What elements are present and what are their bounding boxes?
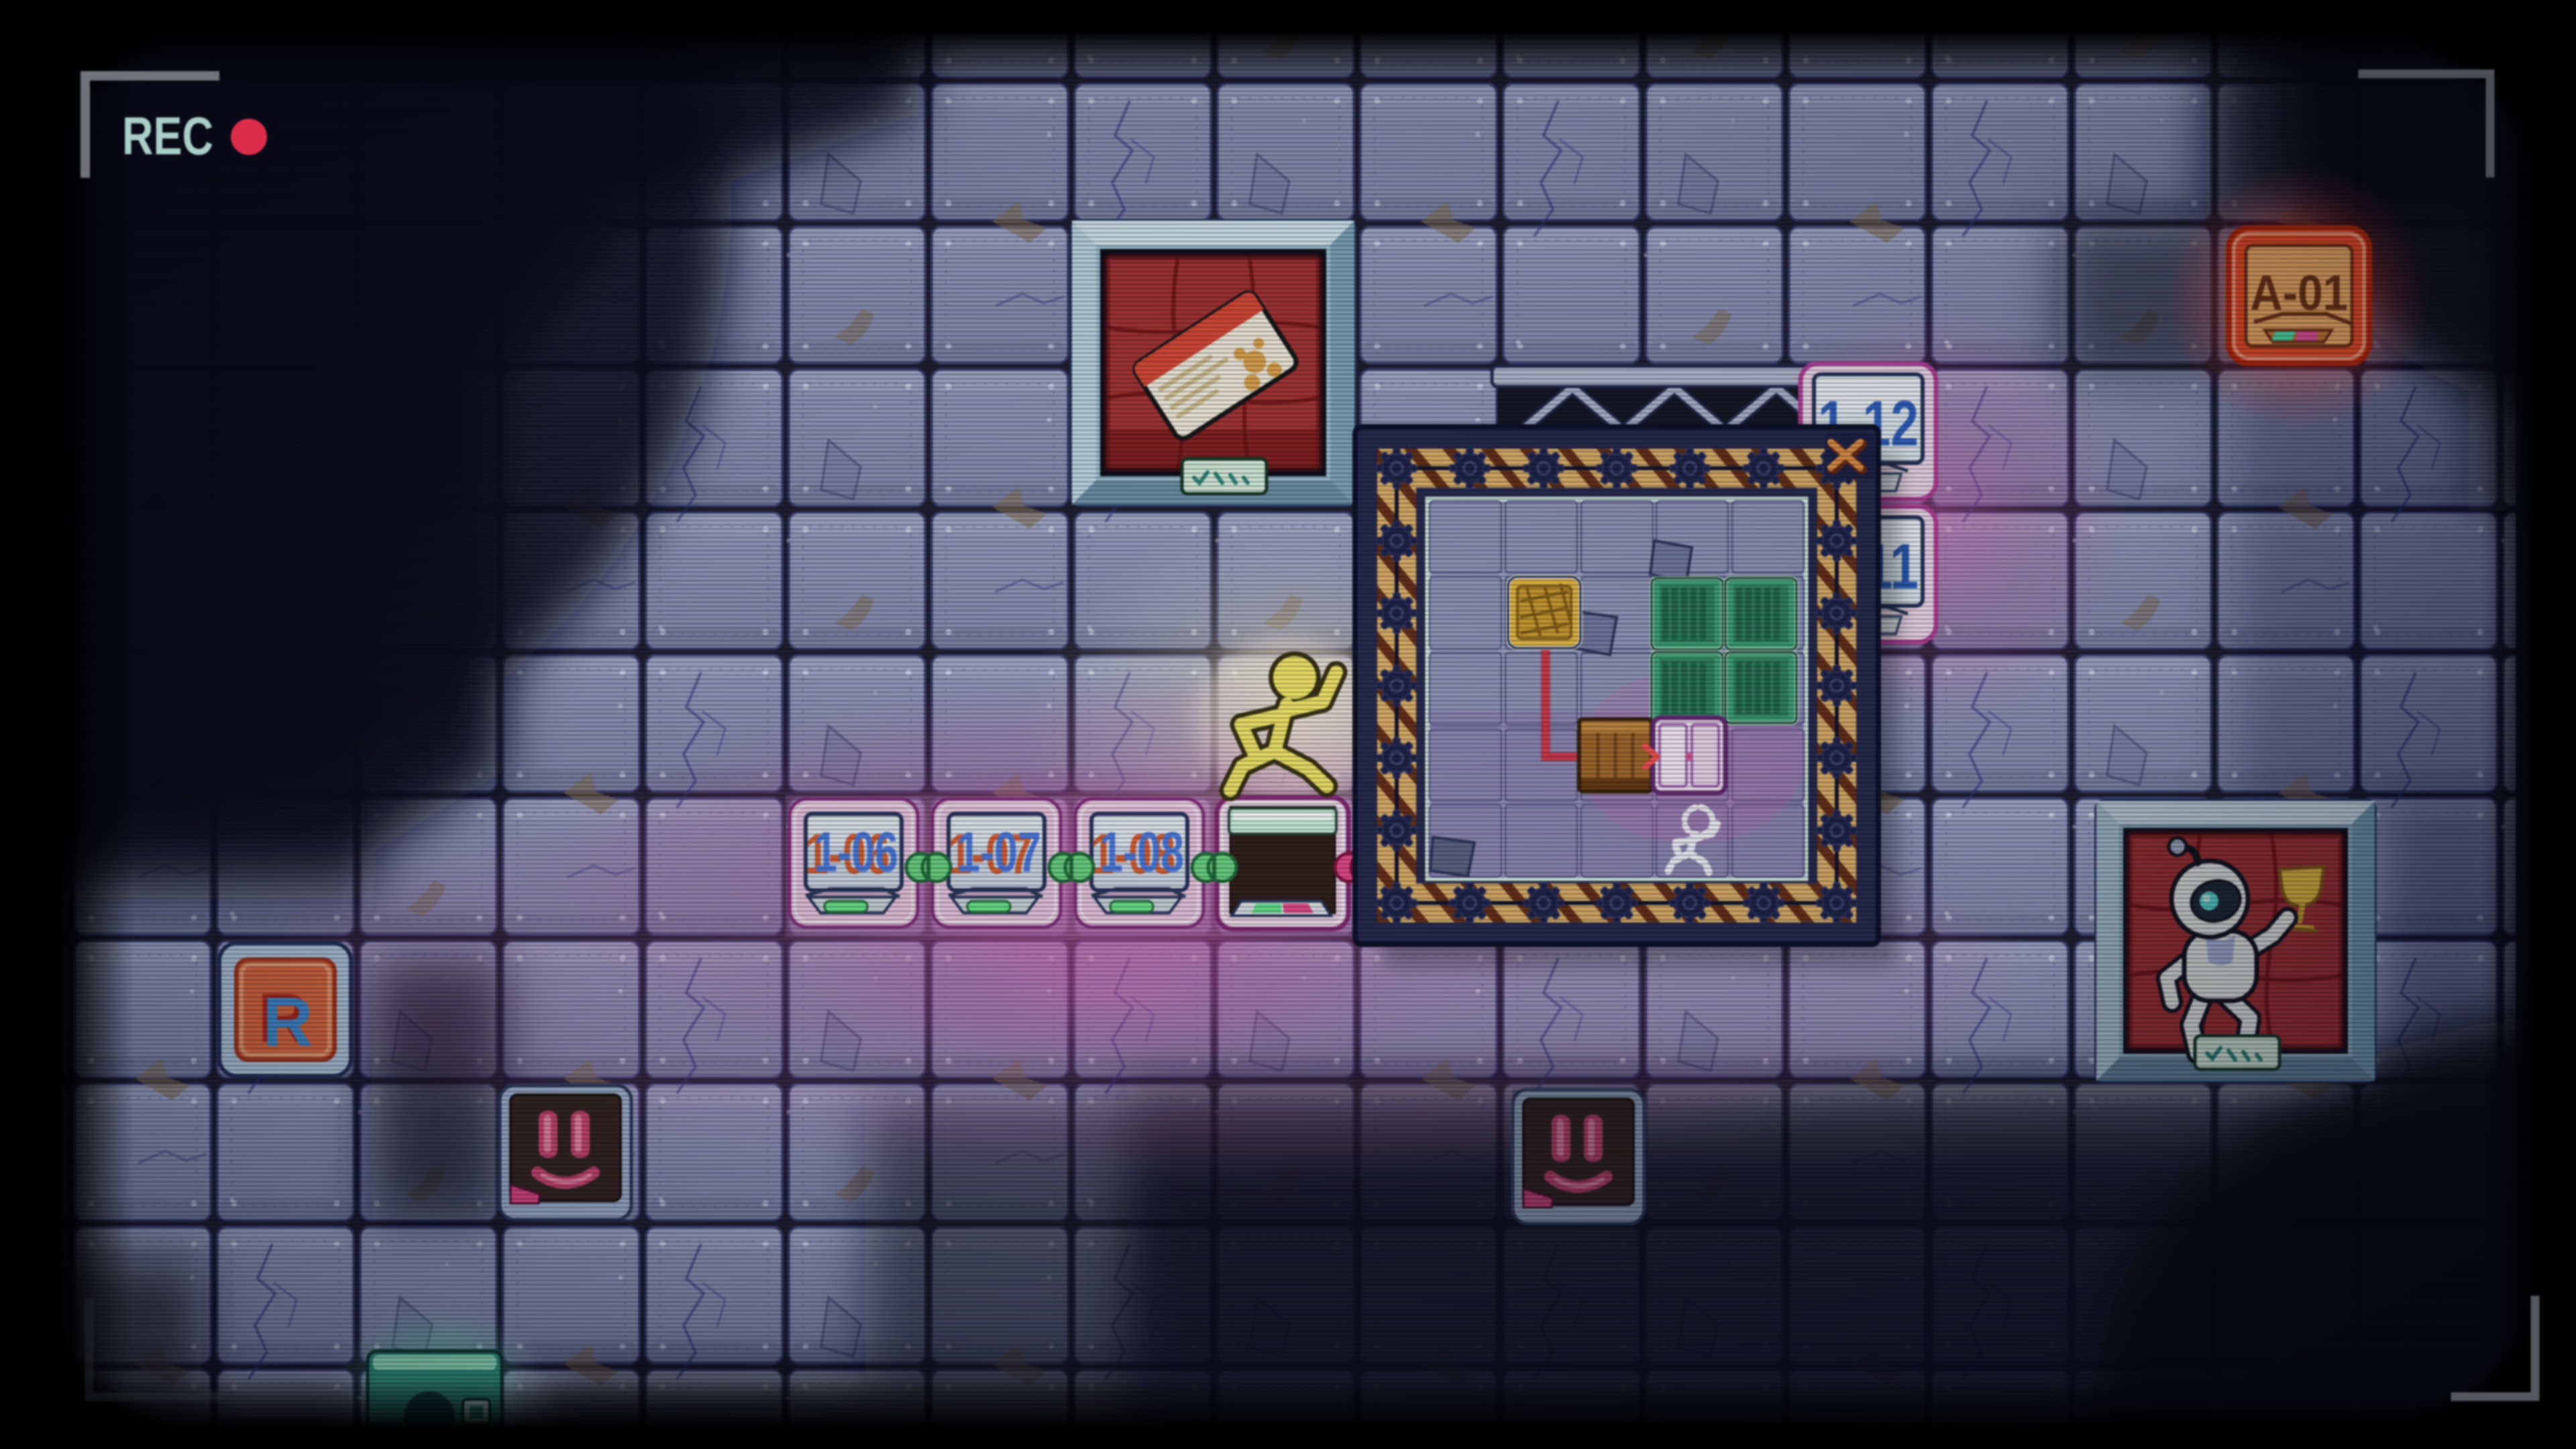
svg-text:REC: REC — [122, 106, 213, 166]
